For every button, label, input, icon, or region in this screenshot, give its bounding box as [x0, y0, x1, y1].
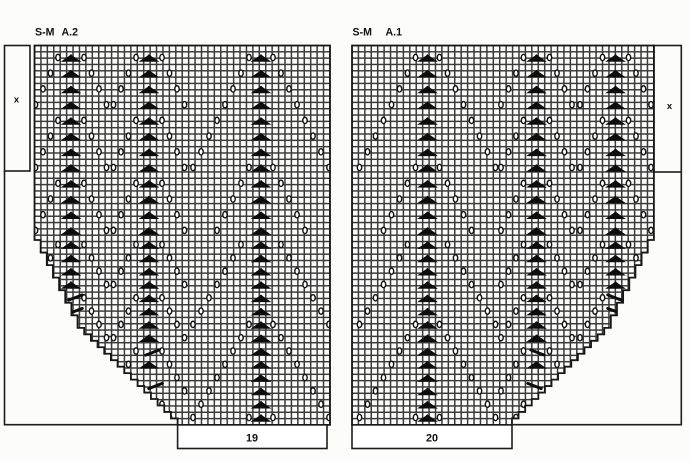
- svg-text:x: x: [667, 101, 673, 112]
- svg-text:S-M: S-M: [35, 27, 55, 39]
- svg-text:20: 20: [426, 433, 438, 445]
- svg-text:S-M: S-M: [353, 27, 373, 39]
- svg-text:x: x: [14, 95, 20, 106]
- svg-text:19: 19: [246, 433, 258, 445]
- svg-text:A.1: A.1: [386, 27, 403, 39]
- svg-text:A.2: A.2: [62, 27, 79, 39]
